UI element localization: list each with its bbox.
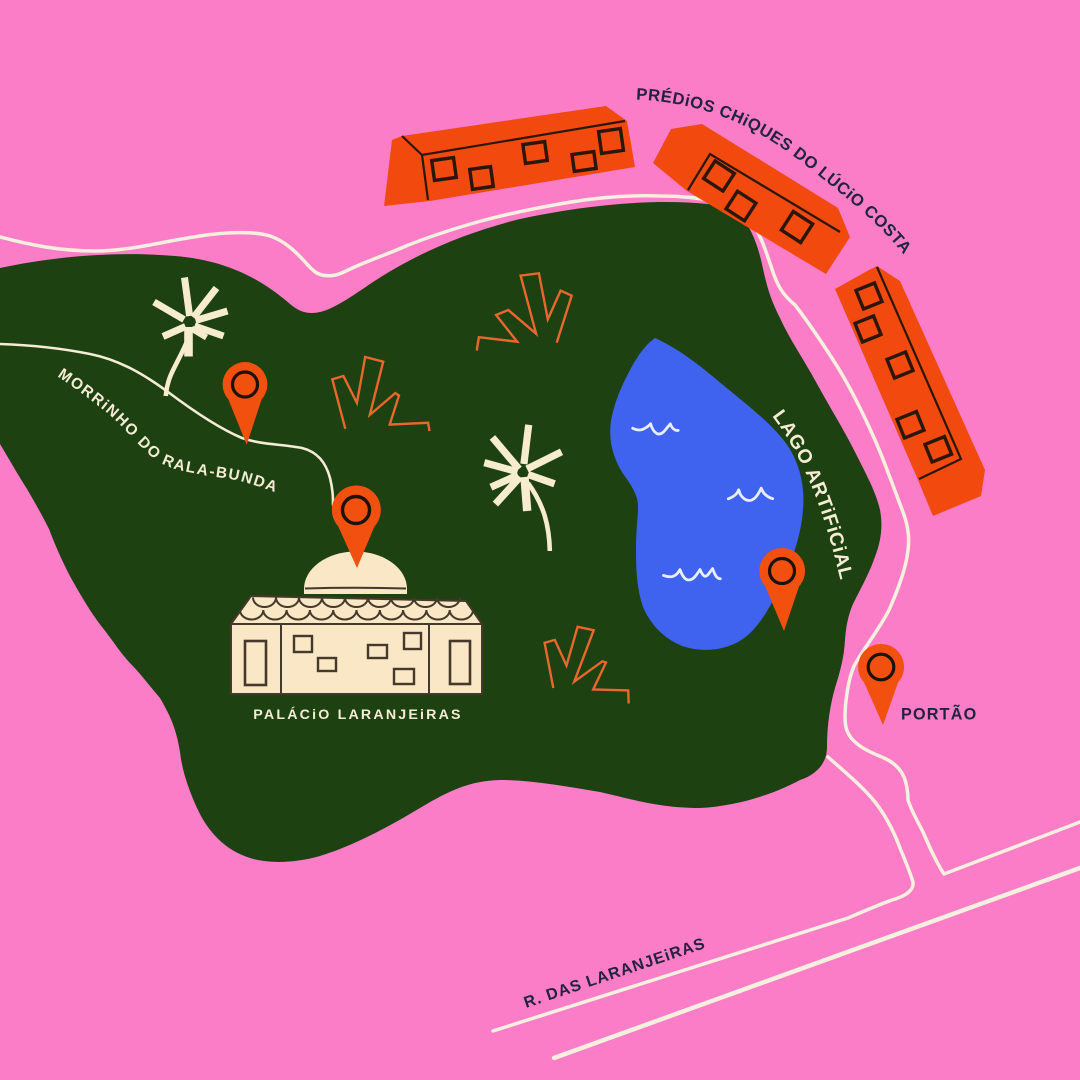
svg-text:PALÁCiO LARANJEiRAS: PALÁCiO LARANJEiRAS (253, 706, 462, 723)
svg-text:PORTÃO: PORTÃO (901, 704, 977, 724)
